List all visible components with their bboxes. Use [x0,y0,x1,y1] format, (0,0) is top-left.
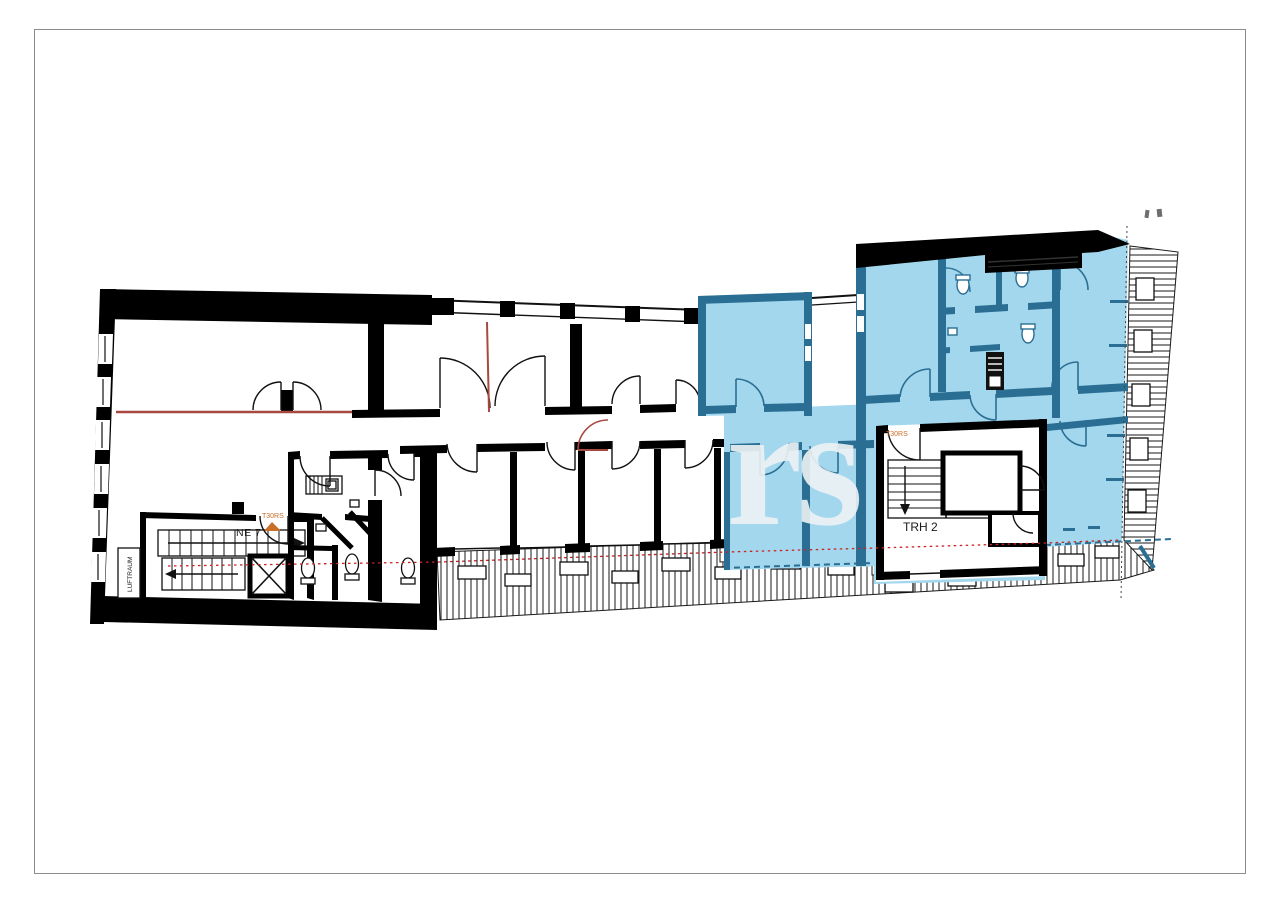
fire-lines [116,322,608,450]
stairwell-trh2: TRH 2 T30RS [876,419,1047,582]
fire-door-label-right: T30RS [886,431,908,438]
toilets-left [301,500,415,584]
kitchen-unit [986,352,1004,390]
balcony-right-hatch [1124,246,1178,570]
fire-door-label-left: T30RS [262,513,284,520]
void-label: LUFTRAUM [127,557,134,592]
floor-plan: LUFTRAUM [0,0,1280,905]
page: LUFTRAUM [0,0,1280,905]
watermark: rs [726,372,859,562]
elevator [250,556,288,596]
unit-label: NE 7 [236,527,261,539]
corner-annotation-marks [1144,209,1162,219]
stairwell-label: TRH 2 [903,520,938,534]
corridor-walls [352,404,724,454]
corridor-doors [253,356,713,472]
air-shaft: LUFTRAUM [118,548,140,598]
fire-door-triangle [264,522,281,531]
stair-hall: LUFTRAUM [118,512,314,600]
interior-partitions [232,322,582,514]
